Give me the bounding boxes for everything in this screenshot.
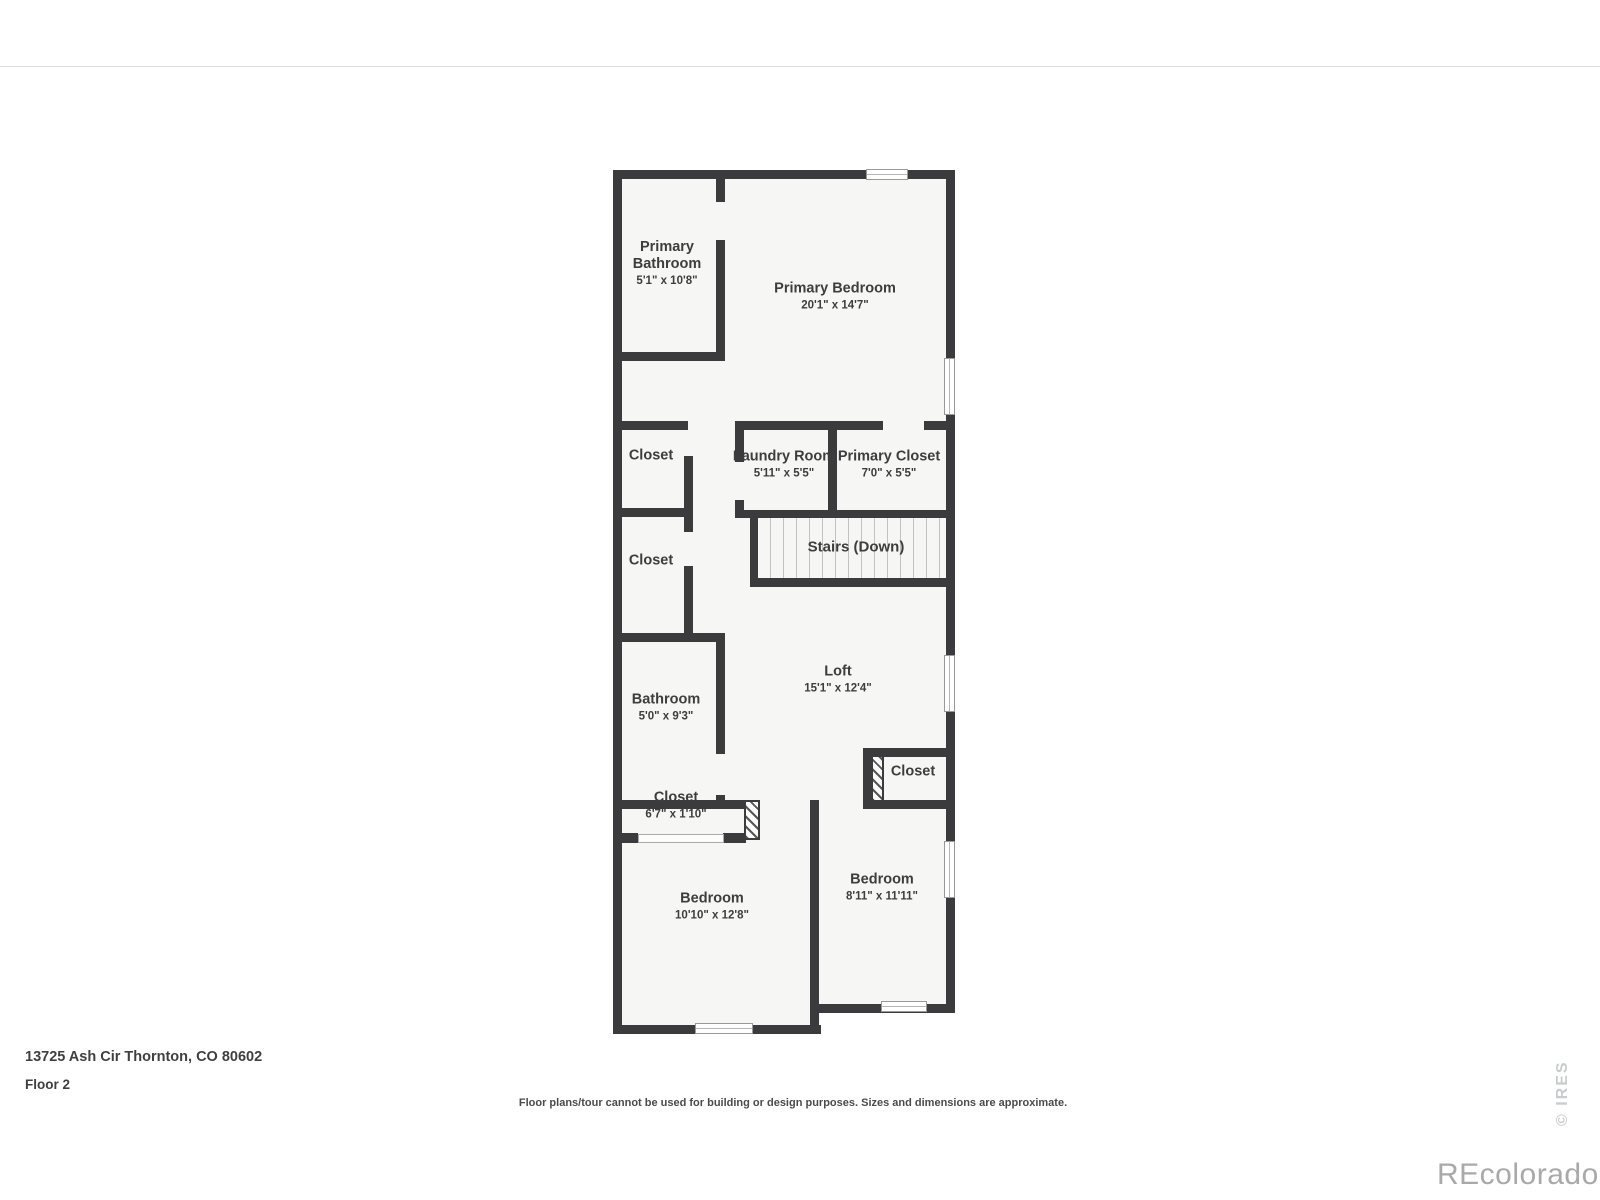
room-name: Closet — [891, 764, 935, 781]
room-label-stairs: Stairs (Down) — [808, 539, 905, 556]
room-name: Laundry Room — [733, 449, 835, 466]
wall-primary-bathroom-bottom — [613, 352, 725, 361]
room-name: Loft — [804, 664, 872, 681]
window-primary-bedroom-right — [944, 358, 955, 415]
room-dims: 5'11" x 5'5" — [733, 466, 835, 482]
window-bedroom-left-bottom — [695, 1023, 753, 1034]
room-label-primary-bathroom: Primary Bathroom 5'1" x 10'8" — [612, 239, 722, 289]
room-name: Closet — [629, 448, 673, 465]
wall-stairs-top — [735, 510, 955, 518]
wall-bathroom-top — [613, 633, 725, 642]
window-bedroom-right-side — [944, 841, 955, 898]
wall-stairs-bottom — [750, 578, 955, 587]
room-label-closet-bottom: Closet 6'7" x 1'10" — [645, 790, 706, 823]
room-name: Closet — [645, 790, 706, 807]
wall-bedroom-divider — [810, 800, 819, 1033]
room-dims: 6'7" x 1'10" — [645, 807, 706, 823]
wall-between-closets — [613, 508, 693, 517]
wall-bottom-closet-stub-left — [621, 833, 638, 843]
wall-mid-right — [924, 421, 955, 430]
wall-closet-divider-lower — [684, 566, 693, 642]
bottom-closet-opening — [638, 834, 724, 843]
window-loft-right — [944, 655, 955, 712]
room-dims: 20'1" x 14'7" — [774, 298, 896, 314]
room-name: Primary Closet — [838, 449, 940, 466]
room-dims: 7'0" x 5'5" — [838, 466, 940, 482]
floor-label: Floor 2 — [25, 1077, 70, 1092]
page-divider — [0, 66, 1600, 67]
wall-bathroom-right — [716, 642, 725, 754]
room-label-bathroom: Bathroom 5'0" x 9'3" — [632, 692, 700, 725]
disclaimer-text: Floor plans/tour cannot be used for buil… — [519, 1097, 1067, 1109]
room-name: Bedroom — [675, 891, 749, 908]
wall-mid-left — [613, 421, 688, 430]
ires-copyright-watermark: © IRES — [1554, 1060, 1572, 1126]
room-name: Closet — [629, 553, 673, 570]
room-dims: 10'10" x 12'8" — [675, 908, 749, 924]
property-address: 13725 Ash Cir Thornton, CO 80602 — [25, 1049, 262, 1065]
room-dims: 8'11" x 11'11" — [846, 889, 918, 905]
room-dims: 5'1" x 10'8" — [612, 273, 722, 289]
room-label-bedroom-right: Bedroom 8'11" x 11'11" — [846, 872, 918, 905]
floorplan-page: Primary Bathroom 5'1" x 10'8" Primary Be… — [0, 0, 1600, 1200]
wall-bottom-right-segment — [863, 800, 955, 809]
room-label-closet-lower: Closet — [629, 553, 673, 570]
right-closet-door-hatch — [871, 755, 884, 803]
room-name: Bathroom — [632, 692, 700, 709]
room-label-laundry-room: Laundry Room 5'11" x 5'5" — [733, 449, 835, 482]
room-dims: 5'0" x 9'3" — [632, 709, 700, 725]
window-top — [866, 169, 908, 180]
wall-mid-center — [735, 421, 883, 430]
room-name: Stairs (Down) — [808, 539, 905, 556]
wall-exterior-left — [613, 170, 622, 1033]
room-name: Bedroom — [846, 872, 918, 889]
bottom-closet-door-hatch — [744, 800, 760, 840]
room-name: Primary Bedroom — [774, 281, 896, 298]
room-label-closet-upper: Closet — [629, 448, 673, 465]
wall-closet-divider-upper — [684, 456, 693, 532]
room-label-primary-bedroom: Primary Bedroom 20'1" x 14'7" — [774, 281, 896, 314]
room-dims: 15'1" x 12'4" — [804, 681, 872, 697]
room-label-loft: Loft 15'1" x 12'4" — [804, 664, 872, 697]
wall-primary-bathroom-right-upper — [716, 178, 725, 202]
room-label-closet-right: Closet — [891, 764, 935, 781]
room-label-bedroom-left: Bedroom 10'10" x 12'8" — [675, 891, 749, 924]
wall-bottom-closet-stub-right — [723, 833, 746, 843]
wall-stairs-left — [750, 518, 758, 586]
room-label-primary-closet: Primary Closet 7'0" x 5'5" — [838, 449, 940, 482]
window-bedroom-right-bottom — [881, 1001, 927, 1012]
recolorado-watermark: REcolorado — [1437, 1158, 1599, 1192]
room-name: Primary Bathroom — [612, 239, 722, 273]
